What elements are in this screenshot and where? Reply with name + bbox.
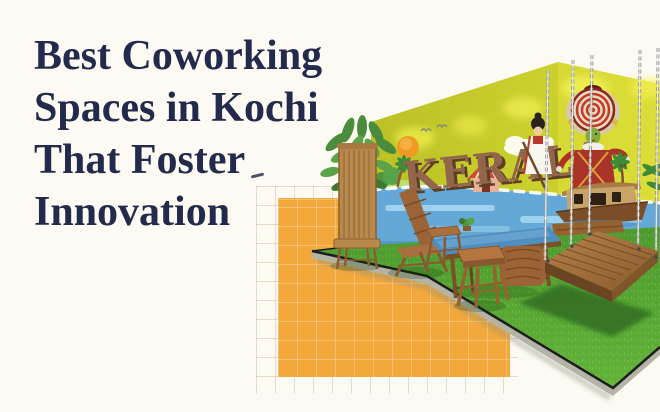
coworking-photo: KERALA KERALA	[0, 0, 660, 412]
curved-bench	[500, 246, 546, 286]
blog-banner: Best Coworking Spaces in Kochi That Fost…	[0, 0, 660, 412]
